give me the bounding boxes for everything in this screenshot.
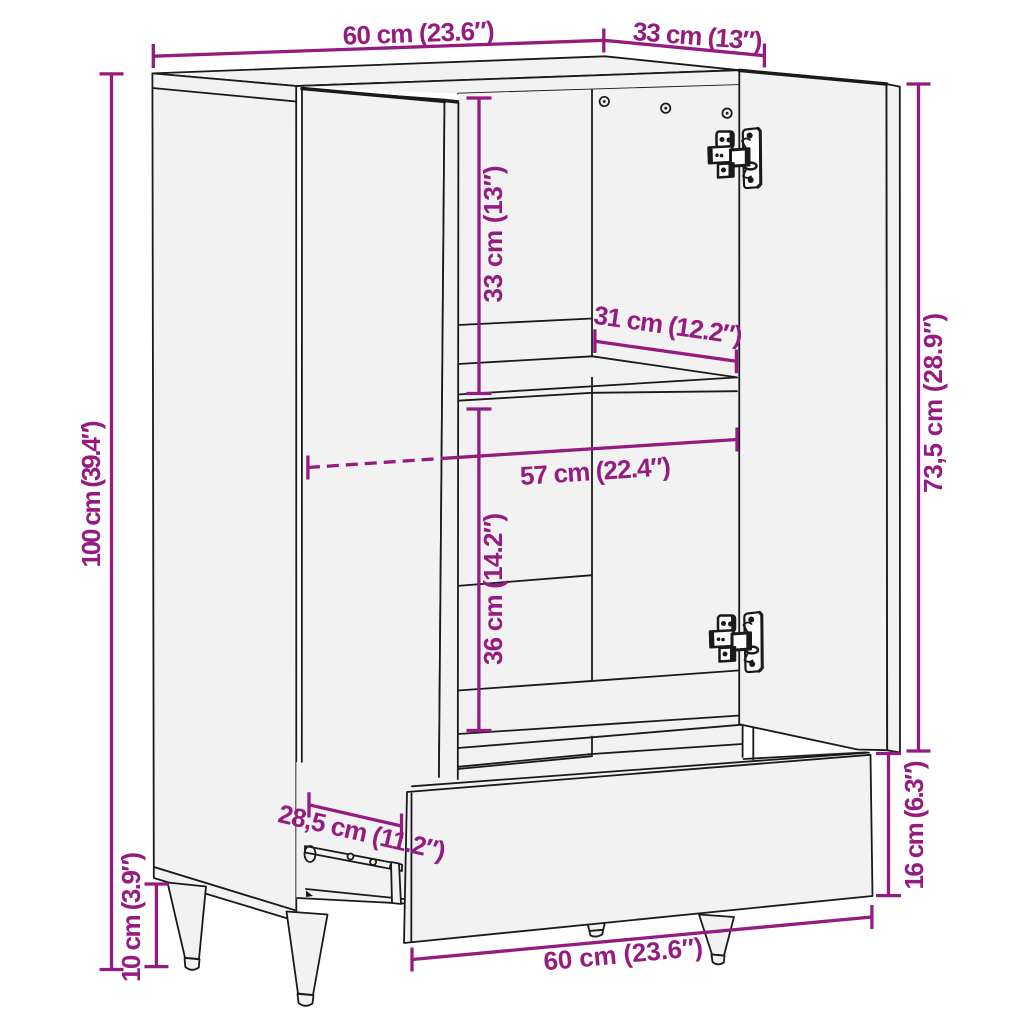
svg-text:60 cm (23.6″): 60 cm (23.6″) [342,15,495,50]
svg-text:33 cm (13″): 33 cm (13″) [478,166,508,303]
svg-text:73,5 cm (28.9″): 73,5 cm (28.9″) [918,313,948,493]
svg-text:16 cm (6.3″): 16 cm (6.3″) [899,761,929,890]
svg-text:100 cm (39.4″): 100 cm (39.4″) [76,421,106,568]
svg-text:10 cm (3.9″): 10 cm (3.9″) [116,852,146,982]
svg-text:36 cm (14.2″): 36 cm (14.2″) [478,513,508,665]
